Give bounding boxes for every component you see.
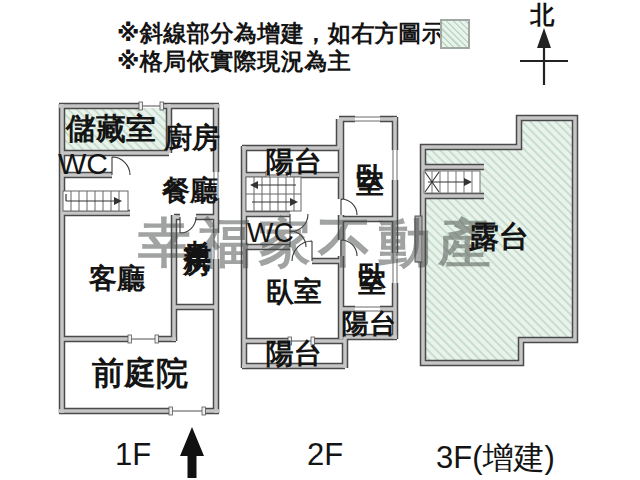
room-label-bedroom-top-right: 臥室 xyxy=(355,141,384,147)
floor-tag-1f: 1F xyxy=(115,437,151,473)
addition-hatch-legend-icon xyxy=(440,19,470,49)
room-label-balcony-bottom-left: 陽台 xyxy=(266,339,322,368)
room-label-dining: 餐廳 xyxy=(162,176,218,205)
room-label-front-yard: 前庭院 xyxy=(92,357,188,391)
note-addition-hatch: ※斜線部分為增建，如右方圖示 xyxy=(117,18,445,49)
room-label-bedroom-bottom-right: 臥室 xyxy=(357,240,386,246)
north-arrow-icon xyxy=(520,28,568,85)
note-actual-layout: ※格局依實際現況為主 xyxy=(117,46,351,77)
room-label-wc-1f: WC xyxy=(58,148,108,180)
stairs-1f xyxy=(63,191,128,211)
room-label-storage: 儲藏室 xyxy=(66,113,156,145)
room-label-balcony-top: 陽台 xyxy=(266,147,322,176)
room-label-terrace: 露台 xyxy=(469,221,529,253)
room-label-wc-2f: WC xyxy=(247,218,294,247)
room-label-parents-room: 孝親房 xyxy=(182,217,211,226)
north-label: 北 xyxy=(530,2,554,27)
room-label-balcony-bottom-right: 陽台 xyxy=(342,310,396,338)
entrance-arrow xyxy=(180,427,204,478)
room-label-bedroom-main: 臥室 xyxy=(266,277,322,306)
room-label-kitchen: 廚房 xyxy=(164,123,220,152)
floor-tag-3f: 3F(增建) xyxy=(436,437,555,479)
room-label-living: 客廳 xyxy=(89,264,145,293)
floorplan-page: ※斜線部分為增建，如右方圖示 ※格局依實際現況為主 北 幸福家不動產 儲藏室 廚… xyxy=(0,0,640,480)
stairs-2f xyxy=(246,177,301,211)
floor-tag-2f: 2F xyxy=(307,437,343,473)
